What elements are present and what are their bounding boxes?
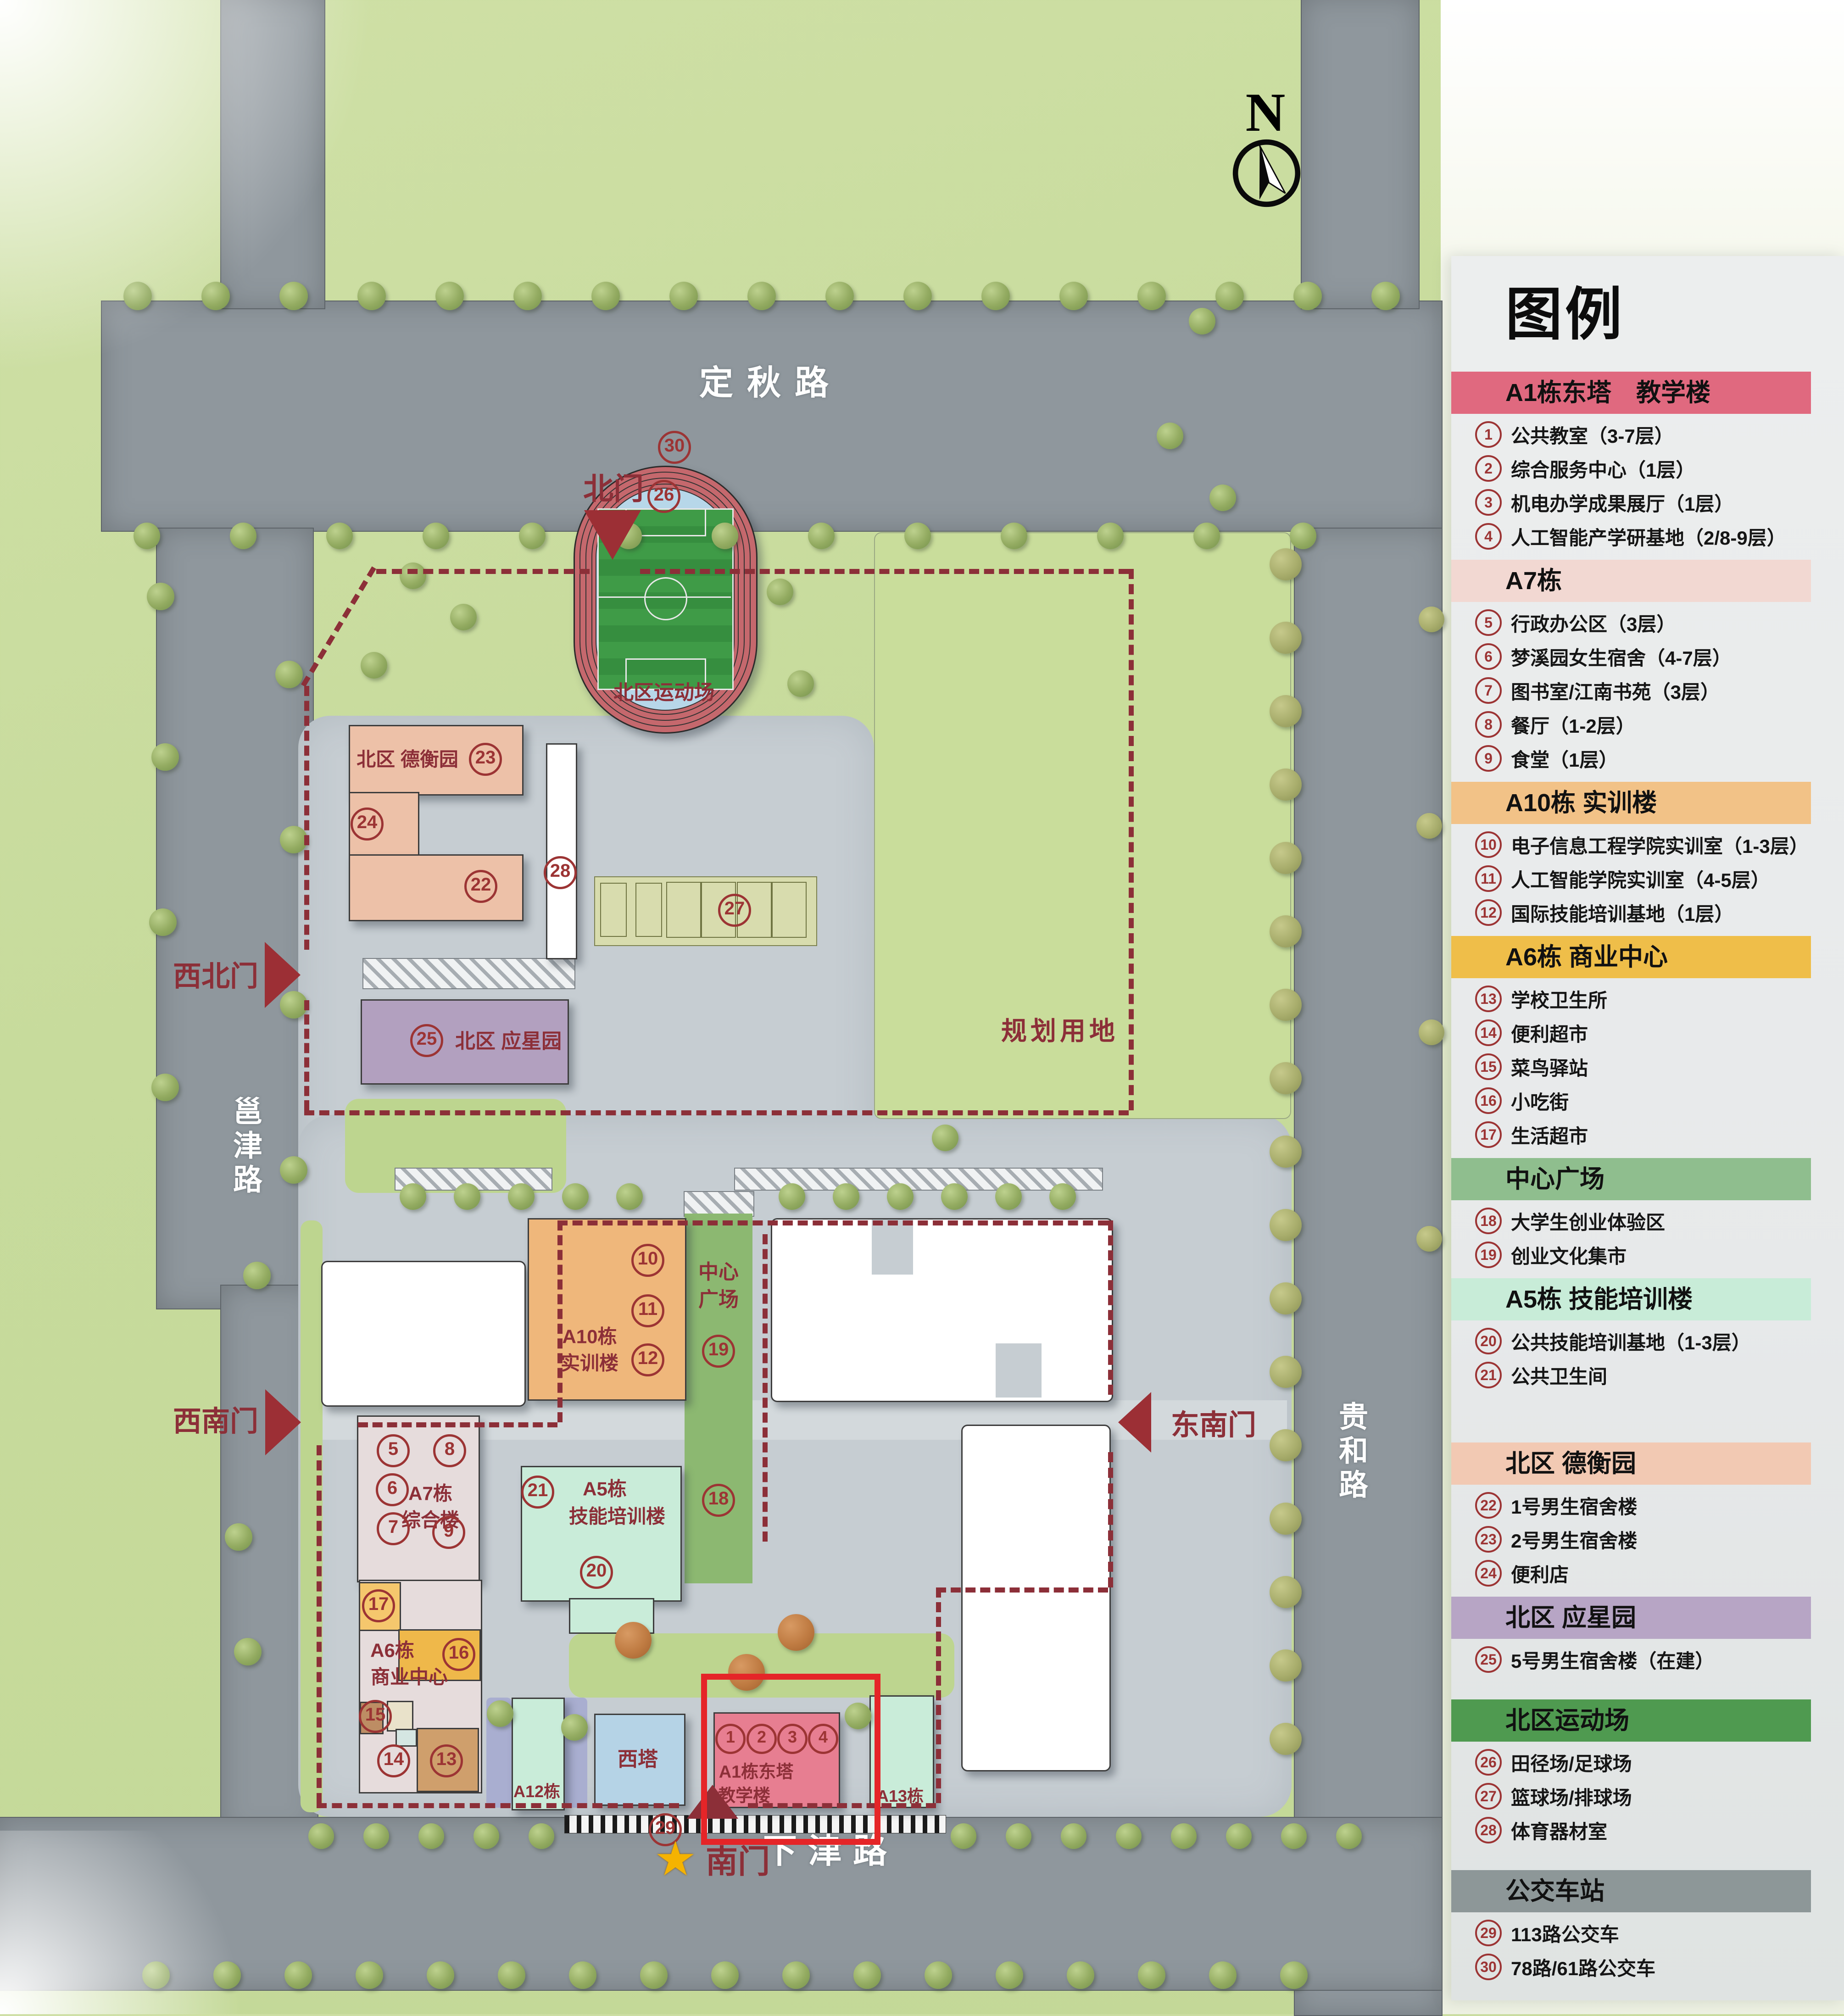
tree-icon: [1419, 1019, 1444, 1045]
tree-icon: [1416, 1226, 1442, 1252]
tree-icon: [569, 1961, 596, 1989]
legend-item: 21 公共卫生间: [1451, 1358, 1844, 1392]
legend-item: 5 行政办公区（3层）: [1451, 606, 1844, 640]
legend-item-label: 餐厅（1-2层）: [1511, 711, 1635, 739]
map-marker-17: 17: [362, 1589, 395, 1622]
legend-item-number-badge: 10: [1475, 831, 1502, 858]
road-dingqiu-label: 定秋路: [699, 356, 842, 405]
legend-section-header: 北区运动场: [1451, 1699, 1811, 1742]
legend-item: 16 小吃街: [1451, 1084, 1844, 1118]
map-marker-26: 26: [647, 480, 680, 513]
boundary-se-jog: [936, 1587, 1108, 1593]
tree-icon: [1371, 282, 1400, 310]
tree-icon: [230, 523, 256, 549]
a7-label-line1: A7栋: [408, 1478, 452, 1506]
legend-item-list: 20 公共技能培训基地（1-3层） 21 公共卫生间: [1451, 1324, 1844, 1392]
map-marker-15: 15: [359, 1700, 392, 1733]
tree-icon: [887, 1183, 914, 1210]
gate-southeast-triangle-icon: [1118, 1392, 1151, 1453]
map-marker-25: 25: [410, 1024, 443, 1057]
tree-icon: [1290, 523, 1316, 549]
tree-icon: [308, 1823, 334, 1849]
legend-item: 1 公共教室（3-7层）: [1451, 418, 1844, 451]
north-sports-label: 北区运动场: [613, 676, 714, 705]
boundary-east-north: [1129, 569, 1134, 1110]
map-marker-18: 18: [702, 1484, 735, 1517]
legend-item-number-badge: 11: [1475, 865, 1502, 892]
legend-item-label: 公共卫生间: [1511, 1361, 1607, 1389]
tree-icon: [747, 282, 776, 310]
legend-section-header: A1栋东塔 教学楼: [1451, 372, 1811, 414]
west-tower-label: 西塔: [618, 1743, 658, 1772]
legend-section-header: A10栋 实训楼: [1451, 782, 1811, 824]
legend-item: 11 人工智能学院实训室（4-5层）: [1451, 862, 1844, 896]
road-top-right-branch: [1301, 0, 1420, 309]
legend-section: A1栋东塔 教学楼 1 公共教室（3-7层） 2 综合服务中心（1层） 3 机电…: [1451, 372, 1844, 553]
a1-highlight-frame: [701, 1674, 880, 1845]
legend-item-number-badge: 26: [1475, 1749, 1502, 1776]
tree-icon: [561, 1714, 588, 1741]
crosswalk-plaza: [684, 1191, 754, 1217]
legend-item-label: 5号男生宿舍楼（在建）: [1511, 1646, 1714, 1674]
tree-icon: [1270, 1062, 1302, 1094]
a13-label: A13栋: [877, 1783, 924, 1807]
gate-south-star-icon: ★: [657, 1835, 694, 1884]
tree-icon: [418, 1823, 444, 1849]
building-white-northeast: [771, 1218, 1113, 1402]
legend-section: 北区 应星园 25 5号男生宿舍楼（在建）: [1451, 1597, 1844, 1676]
legend-item-list: 13 学校卫生所 14 便利超市 15 菜鸟驿站 16 小吃街 17 生活超市: [1451, 982, 1844, 1152]
legend-item: 24 便利店: [1451, 1556, 1844, 1590]
legend-item-list: 25 5号男生宿舍楼（在建）: [1451, 1643, 1844, 1676]
tree-icon: [1281, 1823, 1307, 1849]
tree-icon: [357, 282, 386, 310]
tree-icon: [1209, 1961, 1237, 1989]
tree-icon: [1137, 282, 1166, 310]
map-marker-7: 7: [377, 1512, 410, 1545]
legend-item: 12 国际技能培训基地（1层）: [1451, 896, 1844, 930]
tree-icon: [779, 1183, 805, 1210]
legend-item-label: 学校卫生所: [1511, 985, 1607, 1013]
a10-label-line1: A10栋: [562, 1321, 617, 1349]
legend-item-number-badge: 17: [1475, 1121, 1502, 1148]
tree-icon: [1270, 1649, 1302, 1682]
legend-item-label: 便利超市: [1511, 1019, 1588, 1047]
tree-icon: [142, 1961, 170, 1989]
tree-icon: [669, 282, 698, 310]
legend-item-number-badge: 2: [1475, 455, 1502, 482]
map-marker-28: 28: [544, 856, 577, 889]
parking-yingxingyuan: [362, 958, 575, 989]
legend-item-label: 综合服务中心（1层）: [1511, 455, 1695, 483]
legend-item: 3 机电办学成果展厅（1层）: [1451, 485, 1844, 519]
legend-item-number-badge: 21: [1475, 1362, 1502, 1388]
planning-land-label: 规划用地: [1001, 1011, 1119, 1048]
legend-title: 图例: [1505, 268, 1844, 351]
tennis-court-1: [600, 883, 627, 937]
legend-item-number-badge: 25: [1475, 1646, 1502, 1673]
tree-icon: [1067, 1961, 1094, 1989]
tree-icon: [400, 1183, 426, 1210]
courtyard-notch-2: [996, 1343, 1042, 1398]
basketball-court-1: [666, 882, 701, 938]
map-marker-22: 22: [464, 870, 497, 903]
road-dingqiu: [101, 301, 1443, 532]
tree-icon: [782, 1961, 810, 1989]
tree-icon: [423, 523, 449, 549]
tree-icon: [1270, 695, 1302, 727]
tree-icon: [1116, 1823, 1142, 1849]
a5-label-line1: A5栋: [583, 1474, 627, 1502]
tennis-court-2: [635, 883, 662, 937]
legend-item: 14 便利超市: [1451, 1016, 1844, 1050]
map-marker-10: 10: [631, 1244, 664, 1277]
tree-icon: [280, 826, 307, 853]
tree-icon: [1336, 1823, 1362, 1849]
gate-southeast-label: 东南门: [1171, 1402, 1256, 1443]
legend-item: 19 创业文化集市: [1451, 1238, 1844, 1272]
tree-icon: [787, 670, 814, 697]
building-white-east: [961, 1425, 1111, 1771]
tree-icon: [853, 1961, 881, 1989]
tree-icon: [825, 282, 854, 310]
tree-icon: [284, 1961, 312, 1989]
gate-northwest-label: 西北门: [173, 953, 258, 994]
boundary-sw-horizontal: [358, 1422, 557, 1427]
legend-item-list: 18 大学生创业体验区 19 创业文化集市: [1451, 1204, 1844, 1272]
tree-icon: [1270, 915, 1302, 947]
map-marker-20: 20: [580, 1556, 613, 1589]
building-sports-equipment: [546, 743, 577, 959]
map-marker-14: 14: [377, 1744, 410, 1777]
boundary-bottom-1: [317, 1803, 679, 1808]
a12-label: A12栋: [513, 1778, 560, 1802]
basketball-court-4: [772, 882, 807, 938]
yingxingyuan-label: 北区 应星园: [455, 1025, 562, 1054]
tree-icon: [508, 1183, 535, 1210]
tree-icon: [808, 523, 835, 549]
tree-icon: [123, 282, 152, 310]
tree-icon: [562, 1183, 589, 1210]
tree-icon: [234, 1638, 262, 1665]
legend-section: A5栋 技能培训楼 20 公共技能培训基地（1-3层） 21 公共卫生间: [1451, 1278, 1844, 1392]
gate-southwest-label: 西南门: [173, 1398, 258, 1439]
tree-icon: [1138, 1961, 1165, 1989]
tree-icon: [1270, 842, 1302, 874]
tree-icon: [279, 282, 308, 310]
tree-icon: [981, 282, 1010, 310]
tree-icon: [474, 1823, 499, 1849]
legend-item-number-badge: 3: [1475, 489, 1502, 516]
tree-icon: [711, 1961, 739, 1989]
boundary-west-2: [304, 1000, 309, 1110]
tree-icon: [1226, 1823, 1252, 1849]
road-yongjin-label: 邕津路: [224, 1096, 267, 1198]
tree-icon: [243, 1262, 271, 1289]
legend-item-label: 公共技能培训基地（1-3层）: [1511, 1327, 1751, 1355]
dehengyuan-label: 北区 德衡园: [357, 744, 458, 772]
legend-item-label: 公共教室（3-7层）: [1511, 421, 1674, 449]
compass-north-icon: [1224, 130, 1310, 217]
legend-section: 公交车站 29 113路公交车 30 78路/61路公交车: [1451, 1870, 1844, 1984]
tree-icon: [904, 523, 931, 549]
legend-item-number-badge: 20: [1475, 1328, 1502, 1354]
tree-icon: [225, 1523, 252, 1551]
tree-icon: [903, 282, 932, 310]
legend-section: A6栋 商业中心 13 学校卫生所 14 便利超市 15 菜鸟驿站 16 小吃街…: [1451, 936, 1844, 1152]
legend-item-list: 29 113路公交车 30 78路/61路公交车: [1451, 1916, 1844, 1984]
a10-label-line2: 实训楼: [561, 1348, 618, 1376]
tree-icon: [280, 1156, 307, 1184]
tree-icon: [1270, 1723, 1302, 1755]
tree-icon: [487, 1700, 513, 1727]
legend-item-list: 1 公共教室（3-7层） 2 综合服务中心（1层） 3 机电办学成果展厅（1层）…: [1451, 418, 1844, 553]
tree-icon: [616, 1183, 643, 1210]
legend-item-number-badge: 14: [1475, 1019, 1502, 1046]
legend-section-header: 公交车站: [1451, 1870, 1811, 1912]
legend-item-label: 便利店: [1511, 1559, 1569, 1587]
legend-item-label: 田径场/足球场: [1511, 1749, 1632, 1777]
map-marker-27: 27: [718, 894, 751, 927]
tree-icon: [1209, 485, 1236, 511]
legend-item-label: 113路公交车: [1511, 1919, 1619, 1947]
tree-icon: [356, 1961, 383, 1989]
legend-section-header: A5栋 技能培训楼: [1451, 1278, 1811, 1320]
gate-southwest-triangle-icon: [265, 1389, 301, 1455]
legend-item: 30 78路/61路公交车: [1451, 1950, 1844, 1984]
tree-icon: [1416, 813, 1442, 839]
tree-icon: [1270, 989, 1302, 1021]
legend-item-number-badge: 1: [1475, 421, 1502, 448]
legend-item: 29 113路公交车: [1451, 1916, 1844, 1950]
map-marker-11: 11: [631, 1294, 664, 1327]
tree-icon: [778, 1614, 814, 1651]
legend-item: 23 2号男生宿舍楼: [1451, 1522, 1844, 1556]
legend-item-number-badge: 4: [1475, 523, 1502, 550]
legend-item: 22 1号男生宿舍楼: [1451, 1488, 1844, 1522]
tree-icon: [1270, 1429, 1302, 1461]
map-marker-5: 5: [377, 1434, 410, 1467]
tree-icon: [1189, 308, 1215, 334]
legend-item-list: 5 行政办公区（3层） 6 梦溪园女生宿舍（4-7层） 7 图书室/江南书苑（3…: [1451, 606, 1844, 775]
legend-item-number-badge: 30: [1475, 1954, 1502, 1980]
boundary-north-1: [376, 569, 590, 574]
legend-item-number-badge: 15: [1475, 1053, 1502, 1080]
tree-icon: [529, 1823, 554, 1849]
tree-icon: [361, 652, 387, 679]
tree-icon: [454, 1183, 480, 1210]
tree-icon: [941, 1183, 968, 1210]
tree-icon: [1001, 523, 1027, 549]
tree-icon: [1059, 282, 1088, 310]
tree-icon: [363, 1823, 389, 1849]
tree-icon: [450, 604, 477, 630]
gate-north-triangle-icon: [584, 510, 641, 560]
tree-icon: [833, 1183, 859, 1210]
map-marker-19: 19: [702, 1335, 735, 1368]
legend-item: 28 体育器材室: [1451, 1813, 1844, 1847]
gate-south-label: 南门: [706, 1836, 770, 1882]
legend-item-number-badge: 13: [1475, 986, 1502, 1012]
tree-icon: [1270, 1209, 1302, 1241]
legend-item-label: 1号男生宿舍楼: [1511, 1492, 1637, 1520]
legend-item-label: 篮球场/排球场: [1511, 1782, 1632, 1810]
tree-icon: [925, 1961, 952, 1989]
legend-item-list: 26 田径场/足球场 27 篮球场/排球场 28 体育器材室: [1451, 1745, 1844, 1847]
legend-item: 4 人工智能产学研基地（2/8-9层）: [1451, 519, 1844, 553]
a6-label-line1: A6栋: [370, 1635, 414, 1663]
legend-item: 25 5号男生宿舍楼（在建）: [1451, 1643, 1844, 1676]
tree-icon: [1270, 1136, 1302, 1168]
legend-item-number-badge: 7: [1475, 677, 1502, 704]
legend-item-number-badge: 8: [1475, 711, 1502, 738]
tree-icon: [1419, 607, 1444, 632]
legend-section: 中心广场 18 大学生创业体验区 19 创业文化集市: [1451, 1158, 1844, 1272]
legend-item: 8 餐厅（1-2层）: [1451, 707, 1844, 741]
tree-icon: [932, 1125, 958, 1151]
boundary-south-east-1: [1108, 1220, 1113, 1395]
legend-item-label: 机电办学成果展厅（1层）: [1511, 489, 1733, 517]
legend-section-header: A7栋: [1451, 560, 1811, 602]
map-marker-16: 16: [442, 1638, 475, 1671]
legend-item-number-badge: 22: [1475, 1492, 1502, 1519]
map-marker-30: 30: [658, 431, 691, 464]
tree-icon: [591, 282, 620, 310]
tree-icon: [326, 523, 353, 549]
tree-icon: [1171, 1823, 1197, 1849]
tree-icon: [1270, 622, 1302, 654]
tree-icon: [1270, 769, 1302, 801]
legend-item: 6 梦溪园女生宿舍（4-7层）: [1451, 640, 1844, 674]
legend-panel: 图例 A1栋东塔 教学楼 1 公共教室（3-7层） 2 综合服务中心（1层） 3…: [1451, 256, 1844, 2000]
legend-section-header: A6栋 商业中心: [1451, 936, 1811, 978]
building-a6-box14b: [396, 1729, 417, 1747]
legend-item: 10 电子信息工程学院实训室（1-3层）: [1451, 828, 1844, 862]
tree-icon: [640, 1961, 668, 1989]
map-marker-13: 13: [430, 1744, 463, 1777]
legend-section: 北区 德衡园 22 1号男生宿舍楼 23 2号男生宿舍楼 24 便利店: [1451, 1442, 1844, 1590]
tree-icon: [427, 1961, 454, 1989]
legend-section: A7栋 5 行政办公区（3层） 6 梦溪园女生宿舍（4-7层） 7 图书室/江南…: [1451, 560, 1844, 775]
tree-icon: [134, 523, 160, 549]
boundary-south-west: [317, 1445, 322, 1803]
tree-icon: [201, 282, 230, 310]
tree-icon: [151, 743, 179, 771]
legend-item-label: 人工智能学院实训室（4-5层）: [1511, 865, 1770, 893]
legend-item-number-badge: 27: [1475, 1783, 1502, 1810]
plaza-label-line2: 广场: [698, 1283, 739, 1312]
legend-item-label: 生活超市: [1511, 1121, 1588, 1149]
legend-item-label: 人工智能产学研基地（2/8-9层）: [1511, 523, 1786, 551]
boundary-mid-vertical-plaza: [763, 1234, 768, 1542]
legend-item-label: 行政办公区（3层）: [1511, 609, 1676, 637]
boundary-north-campus-south: [304, 1110, 1129, 1115]
legend-item: 15 菜鸟驿站: [1451, 1050, 1844, 1084]
boundary-north-2: [640, 569, 1129, 574]
map-marker-8: 8: [433, 1434, 466, 1467]
tree-icon: [1006, 1823, 1031, 1849]
legend-item-label: 国际技能培训基地（1层）: [1511, 899, 1733, 927]
gate-northwest-triangle-icon: [265, 942, 301, 1008]
gate-north-label: 北门: [583, 464, 644, 508]
legend-item-label: 78路/61路公交车: [1511, 1953, 1655, 1981]
legend-item-number-badge: 6: [1475, 643, 1502, 670]
legend-item-number-badge: 28: [1475, 1817, 1502, 1843]
tree-icon: [513, 282, 542, 310]
tree-icon: [767, 579, 793, 605]
tree-icon: [1270, 1576, 1302, 1608]
map-marker-12: 12: [631, 1343, 664, 1376]
legend-item: 7 图书室/江南书苑（3层）: [1451, 674, 1844, 707]
legend-item-label: 电子信息工程学院实训室（1-3层）: [1511, 831, 1809, 859]
legend-item-list: 10 电子信息工程学院实训室（1-3层） 11 人工智能学院实训室（4-5层） …: [1451, 828, 1844, 930]
map-marker-21: 21: [521, 1476, 554, 1509]
plaza-label-line1: 中心: [698, 1255, 739, 1285]
legend-item-number-badge: 29: [1475, 1920, 1502, 1946]
a6-label-line2: 商业中心: [371, 1662, 448, 1690]
map-marker-9: 9: [432, 1516, 465, 1549]
boundary-south-east-2: [1108, 1452, 1113, 1587]
legend-item-number-badge: 23: [1475, 1526, 1502, 1553]
road-guihe: [1294, 528, 1443, 2016]
legend-item-list: 22 1号男生宿舍楼 23 2号男生宿舍楼 24 便利店: [1451, 1488, 1844, 1590]
legend-section-header: 中心广场: [1451, 1158, 1811, 1200]
tree-icon: [1270, 548, 1302, 580]
legend-item-label: 食堂（1层）: [1511, 745, 1618, 773]
legend-item-label: 体育器材室: [1511, 1816, 1607, 1844]
legend-item: 9 食堂（1层）: [1451, 741, 1844, 775]
legend-item-label: 梦溪园女生宿舍（4-7层）: [1511, 643, 1732, 671]
tree-icon: [1193, 523, 1220, 549]
boundary-south-campus-top: [557, 1220, 1108, 1225]
legend-section-header: 北区 德衡园: [1451, 1442, 1811, 1485]
legend-item-number-badge: 24: [1475, 1560, 1502, 1587]
legend-section: 北区运动场 26 田径场/足球场 27 篮球场/排球场 28 体育器材室: [1451, 1699, 1844, 1847]
tree-icon: [147, 583, 174, 610]
tree-icon: [151, 1074, 179, 1101]
tree-icon: [1270, 1503, 1302, 1535]
tree-icon: [1097, 523, 1124, 549]
tree-icon: [435, 282, 464, 310]
tree-icon: [1270, 1356, 1302, 1388]
legend-item: 27 篮球场/排球场: [1451, 1779, 1844, 1813]
tree-icon: [400, 562, 426, 589]
legend-item-label: 创业文化集市: [1511, 1241, 1627, 1269]
legend-section: A10栋 实训楼 10 电子信息工程学院实训室（1-3层） 11 人工智能学院实…: [1451, 782, 1844, 930]
legend-section-header: 北区 应星园: [1451, 1597, 1811, 1639]
tree-icon: [275, 661, 303, 688]
legend-item: 2 综合服务中心（1层）: [1451, 451, 1844, 485]
legend-item-number-badge: 18: [1475, 1208, 1502, 1234]
legend-item-label: 图书室/江南书苑（3层）: [1511, 677, 1720, 705]
tree-icon: [1049, 1183, 1076, 1210]
legend-item: 13 学校卫生所: [1451, 982, 1844, 1016]
legend-item: 17 生活超市: [1451, 1118, 1844, 1152]
legend-item-label: 2号男生宿舍楼: [1511, 1526, 1637, 1554]
legend-item: 18 大学生创业体验区: [1451, 1204, 1844, 1238]
tree-icon: [213, 1961, 241, 1989]
tree-icon: [1280, 1961, 1308, 1989]
tree-icon: [149, 908, 177, 936]
legend-item-label: 大学生创业体验区: [1511, 1207, 1665, 1235]
courtyard-notch-1: [872, 1220, 913, 1275]
tree-icon: [995, 1183, 1022, 1210]
boundary-mid-vertical-west: [557, 1220, 563, 1422]
map-marker-23: 23: [469, 743, 502, 776]
legend-item-number-badge: 5: [1475, 609, 1502, 636]
tree-icon: [1061, 1823, 1086, 1849]
building-white-northwest: [321, 1261, 526, 1407]
